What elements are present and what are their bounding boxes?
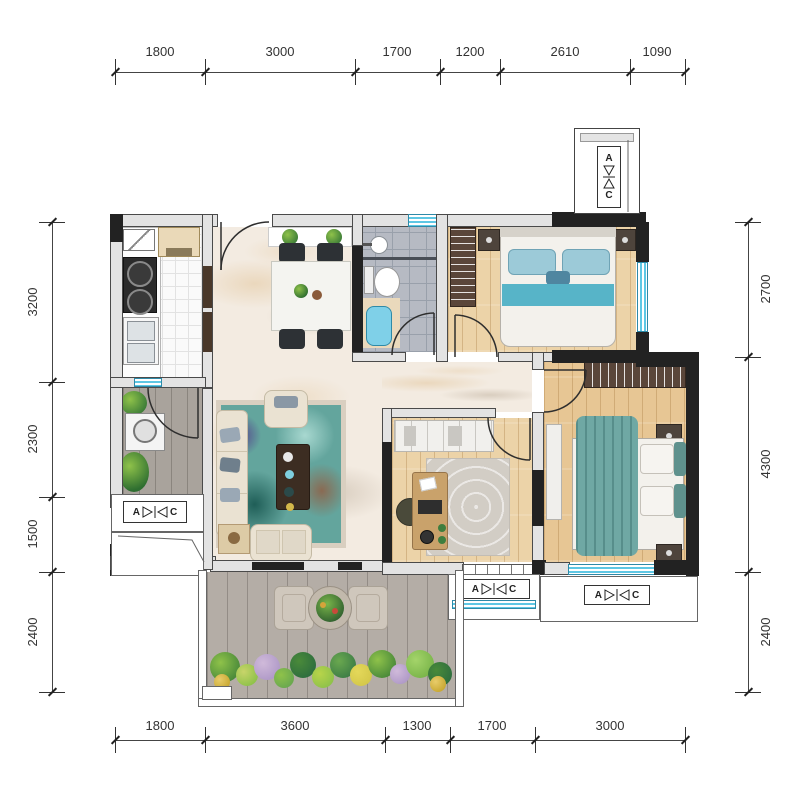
range-hood-vent (166, 248, 192, 256)
wall (552, 212, 646, 227)
pillow-teal (674, 442, 686, 476)
tv-cabinet (546, 424, 562, 520)
slider-track (252, 562, 304, 570)
ac-arrows-icon (603, 165, 615, 189)
pillow (562, 249, 610, 275)
floor-cushion-inner (356, 594, 380, 622)
ac-letter: C (632, 590, 639, 601)
dim-right-1: 2700 (758, 267, 774, 311)
ledge (111, 532, 204, 576)
dimension-line-top (115, 72, 686, 73)
plant (119, 452, 149, 492)
wall (436, 214, 448, 362)
cushion (546, 271, 570, 285)
dim-bottom-4: 1700 (470, 718, 514, 734)
wardrobe (450, 227, 476, 307)
wall (382, 408, 392, 444)
headboard (500, 227, 616, 237)
dining-chair (317, 329, 343, 349)
ac-letter: A (605, 153, 612, 164)
balcony-railing (455, 570, 464, 707)
wall (532, 352, 544, 370)
table-decor (312, 290, 322, 300)
armchair-pillow (274, 396, 298, 408)
ac-arrows-icon (142, 506, 168, 518)
ac-arrows-icon (604, 589, 630, 601)
plant-ball (430, 676, 446, 692)
pillow (640, 486, 674, 516)
wall (352, 246, 363, 356)
ac-letter: C (509, 584, 516, 595)
ac-platform-window (452, 600, 536, 609)
dimension-line-right (748, 222, 749, 692)
slider-track (338, 562, 362, 570)
hallway-floor (382, 362, 532, 412)
dim-left-1: 3200 (25, 280, 41, 324)
tray-item (286, 503, 294, 511)
dim-top-2: 3000 (258, 44, 302, 60)
dim-bottom-2: 3600 (273, 718, 317, 734)
hanging-clothes (404, 426, 416, 446)
dining-chair (279, 243, 305, 263)
dimension-line-left (52, 222, 53, 692)
bathroom-window (408, 214, 438, 227)
dining-chair (279, 329, 305, 349)
ac-letter: C (170, 507, 177, 518)
master-window (568, 564, 658, 575)
pillow (640, 444, 674, 474)
nightstand (614, 229, 636, 251)
wall (498, 352, 554, 362)
blanket (576, 416, 638, 556)
bed-runner (502, 284, 614, 306)
dim-bottom-5: 3000 (588, 718, 632, 734)
dim-top-3: 1700 (375, 44, 419, 60)
utility-window (134, 378, 162, 387)
sink-basin (127, 321, 155, 341)
burner (127, 289, 153, 315)
ac-letter: A (472, 584, 479, 595)
toilet-tank (364, 266, 374, 294)
kitchen-sliding-door (203, 266, 212, 308)
shaft-vent (580, 133, 634, 142)
ac-unit-label: A C (123, 501, 187, 523)
ac-letter: A (133, 507, 140, 518)
desk-plant (438, 524, 446, 532)
wall (654, 560, 698, 575)
shower-partition (362, 257, 436, 260)
planter-greens (316, 594, 344, 622)
dimension-line-bottom (115, 740, 686, 741)
dim-bottom-1: 1800 (138, 718, 182, 734)
wall (436, 214, 556, 227)
fridge (123, 229, 155, 251)
pillow-teal (674, 484, 686, 518)
sofa-pillow (220, 488, 240, 502)
bathtub (366, 306, 392, 346)
dim-left-2: 2300 (25, 417, 41, 461)
wall (552, 350, 642, 363)
desk-lamp (420, 530, 434, 544)
tray-item (284, 487, 294, 497)
wall (686, 352, 699, 576)
dim-top-1: 1800 (138, 44, 182, 60)
monitor (418, 500, 442, 514)
planter-flower (332, 608, 338, 614)
dining-table (271, 261, 351, 331)
wall (110, 214, 123, 508)
dim-left-3: 1500 (25, 512, 41, 556)
ac-unit-label: A C (584, 585, 650, 605)
dim-left-4: 2400 (25, 610, 41, 654)
wall (352, 352, 406, 362)
hanging-clothes (448, 426, 462, 446)
sofa-pillow (219, 457, 240, 473)
loveseat-cushion (256, 530, 280, 554)
floor-plan: A C A C A C A C (0, 0, 800, 800)
dim-bottom-3: 1300 (395, 718, 439, 734)
nightstand (478, 229, 500, 251)
ac-unit-label: A C (458, 579, 530, 599)
balcony-step (202, 686, 232, 700)
wall (382, 408, 496, 418)
tray-item (283, 452, 293, 462)
kitchen-sliding-door (203, 312, 212, 352)
wall (544, 562, 570, 575)
washbasin (370, 236, 388, 254)
sink-basin (127, 343, 155, 363)
ac-letter: A (595, 590, 602, 601)
dim-top-6: 1090 (635, 44, 679, 60)
wall (110, 214, 123, 242)
ac-arrows-icon (481, 583, 507, 595)
ac-letter: C (605, 190, 612, 201)
plant (121, 391, 147, 415)
toilet-bowl (374, 267, 400, 297)
ac-unit-label-vertical: A C (597, 146, 621, 208)
dining-chair (317, 243, 343, 263)
wall (636, 222, 649, 262)
sofa-pillow (219, 427, 241, 444)
side-table-bowl (228, 532, 240, 544)
desk-plant (438, 536, 446, 544)
wall (358, 214, 410, 227)
wall (382, 442, 392, 564)
dim-top-4: 1200 (448, 44, 492, 60)
dim-right-3: 2400 (758, 610, 774, 654)
planter-flower (320, 602, 326, 608)
wall (272, 214, 358, 227)
dim-right-2: 4300 (758, 442, 774, 486)
table-plant (294, 284, 308, 298)
balcony-railing (198, 698, 464, 707)
burner (127, 261, 153, 287)
floor-cushion-inner (282, 594, 306, 622)
wall (352, 214, 363, 246)
dim-top-5: 2610 (543, 44, 587, 60)
loveseat-cushion (282, 530, 306, 554)
tray-item (285, 470, 294, 479)
bedroom2-window (637, 262, 648, 332)
wall (532, 470, 544, 526)
washer-drum (133, 419, 157, 443)
